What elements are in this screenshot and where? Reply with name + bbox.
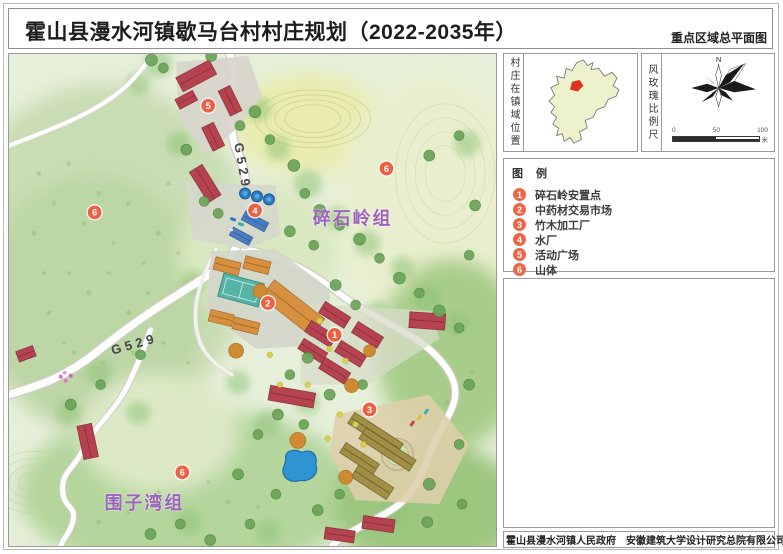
town-boundary-shape — [549, 59, 619, 142]
footer-bar: 霍山县漫水河镇人民政府 安徽建筑大学设计研究总院有限公司 — [503, 531, 775, 548]
marker-6-mountain-ne: 6 — [379, 161, 394, 176]
pond — [283, 450, 317, 481]
legend-num-4: 4 — [513, 233, 526, 246]
legend-num-3: 3 — [513, 218, 526, 231]
svg-text:6: 6 — [92, 208, 97, 219]
footer-credits: 霍山县漫水河镇人民政府 安徽建筑大学设计研究总院有限公司 — [504, 532, 783, 547]
location-panel-label: 村庄在镇域位置 — [504, 54, 524, 151]
legend-item-factory: 3 竹木加工厂 — [513, 217, 774, 232]
scale-tick: 50 — [713, 127, 720, 134]
svg-text:6: 6 — [384, 164, 389, 175]
windrose-panel-label: 风玫瑰比例尺 — [642, 54, 662, 151]
wind-rose: N — [672, 55, 768, 121]
legend-num-2: 2 — [513, 203, 526, 216]
marker-3-factory: 3 — [362, 402, 377, 417]
legend-num-1: 1 — [513, 188, 526, 201]
svg-text:3: 3 — [367, 405, 372, 416]
legend-item-resettlement: 1 碎石岭安置点 — [513, 187, 774, 202]
drawing-name: 重点区域总平面图 — [671, 29, 767, 46]
legend-item-market: 2 中药材交易市场 — [513, 202, 774, 217]
page-title: 霍山县漫水河镇歇马台村村庄规划（2022-2035年） — [25, 16, 517, 46]
plan-sheet: 霍山县漫水河镇歇马台村村庄规划（2022-2035年） 重点区域总平面图 — [0, 0, 783, 554]
marker-5-plaza: 5 — [201, 98, 216, 113]
windrose-panel: 风玫瑰比例尺 N 0 50 100 — [641, 53, 775, 152]
blank-panel — [503, 278, 775, 528]
scale-unit: 米 — [762, 134, 769, 144]
scale-bar: 0 50 100 米 — [672, 127, 768, 144]
scale-tick: 0 — [672, 127, 676, 134]
town-boundary-inset — [524, 57, 639, 149]
legend-item-water-plant: 4 水厂 — [513, 232, 774, 247]
legend-title: 图 例 — [512, 165, 774, 181]
marker-6-mountain-s: 6 — [175, 465, 190, 480]
legend-num-5: 5 — [513, 248, 526, 261]
svg-text:1: 1 — [332, 330, 337, 341]
svg-text:4: 4 — [252, 206, 258, 217]
svg-text:2: 2 — [265, 298, 270, 309]
group-label-suishiling: 碎石岭组 — [313, 207, 393, 228]
water-plant-ground — [186, 181, 280, 249]
marker-6-mountain-w: 6 — [87, 205, 102, 220]
legend-num-6: 6 — [513, 263, 526, 276]
scale-tick: 100 — [757, 127, 768, 134]
north-label: N — [716, 56, 721, 64]
site-plan-map: G529 G529 碎石岭组 围子湾组 5 4 2 1 3 6 6 6 — [8, 53, 497, 547]
svg-text:5: 5 — [206, 101, 211, 112]
marker-2-market: 2 — [260, 296, 275, 311]
legend-item-plaza: 5 活动广场 — [513, 247, 774, 262]
svg-text:6: 6 — [180, 468, 185, 479]
location-panel: 村庄在镇域位置 — [503, 53, 638, 152]
title-bar: 霍山县漫水河镇歇马台村村庄规划（2022-2035年） 重点区域总平面图 — [8, 8, 773, 49]
legend-item-mountain: 6 山体 — [513, 262, 774, 277]
marker-1-resettlement: 1 — [327, 327, 342, 342]
legend-panel: 图 例 1 碎石岭安置点 2 中药材交易市场 3 竹木加工厂 4 水厂 5 活动… — [503, 158, 775, 272]
group-label-weiziwan: 围子湾组 — [105, 492, 185, 513]
marker-4-water-plant: 4 — [248, 203, 263, 218]
map-canvas: G529 G529 碎石岭组 围子湾组 5 4 2 1 3 6 6 6 — [9, 54, 496, 546]
